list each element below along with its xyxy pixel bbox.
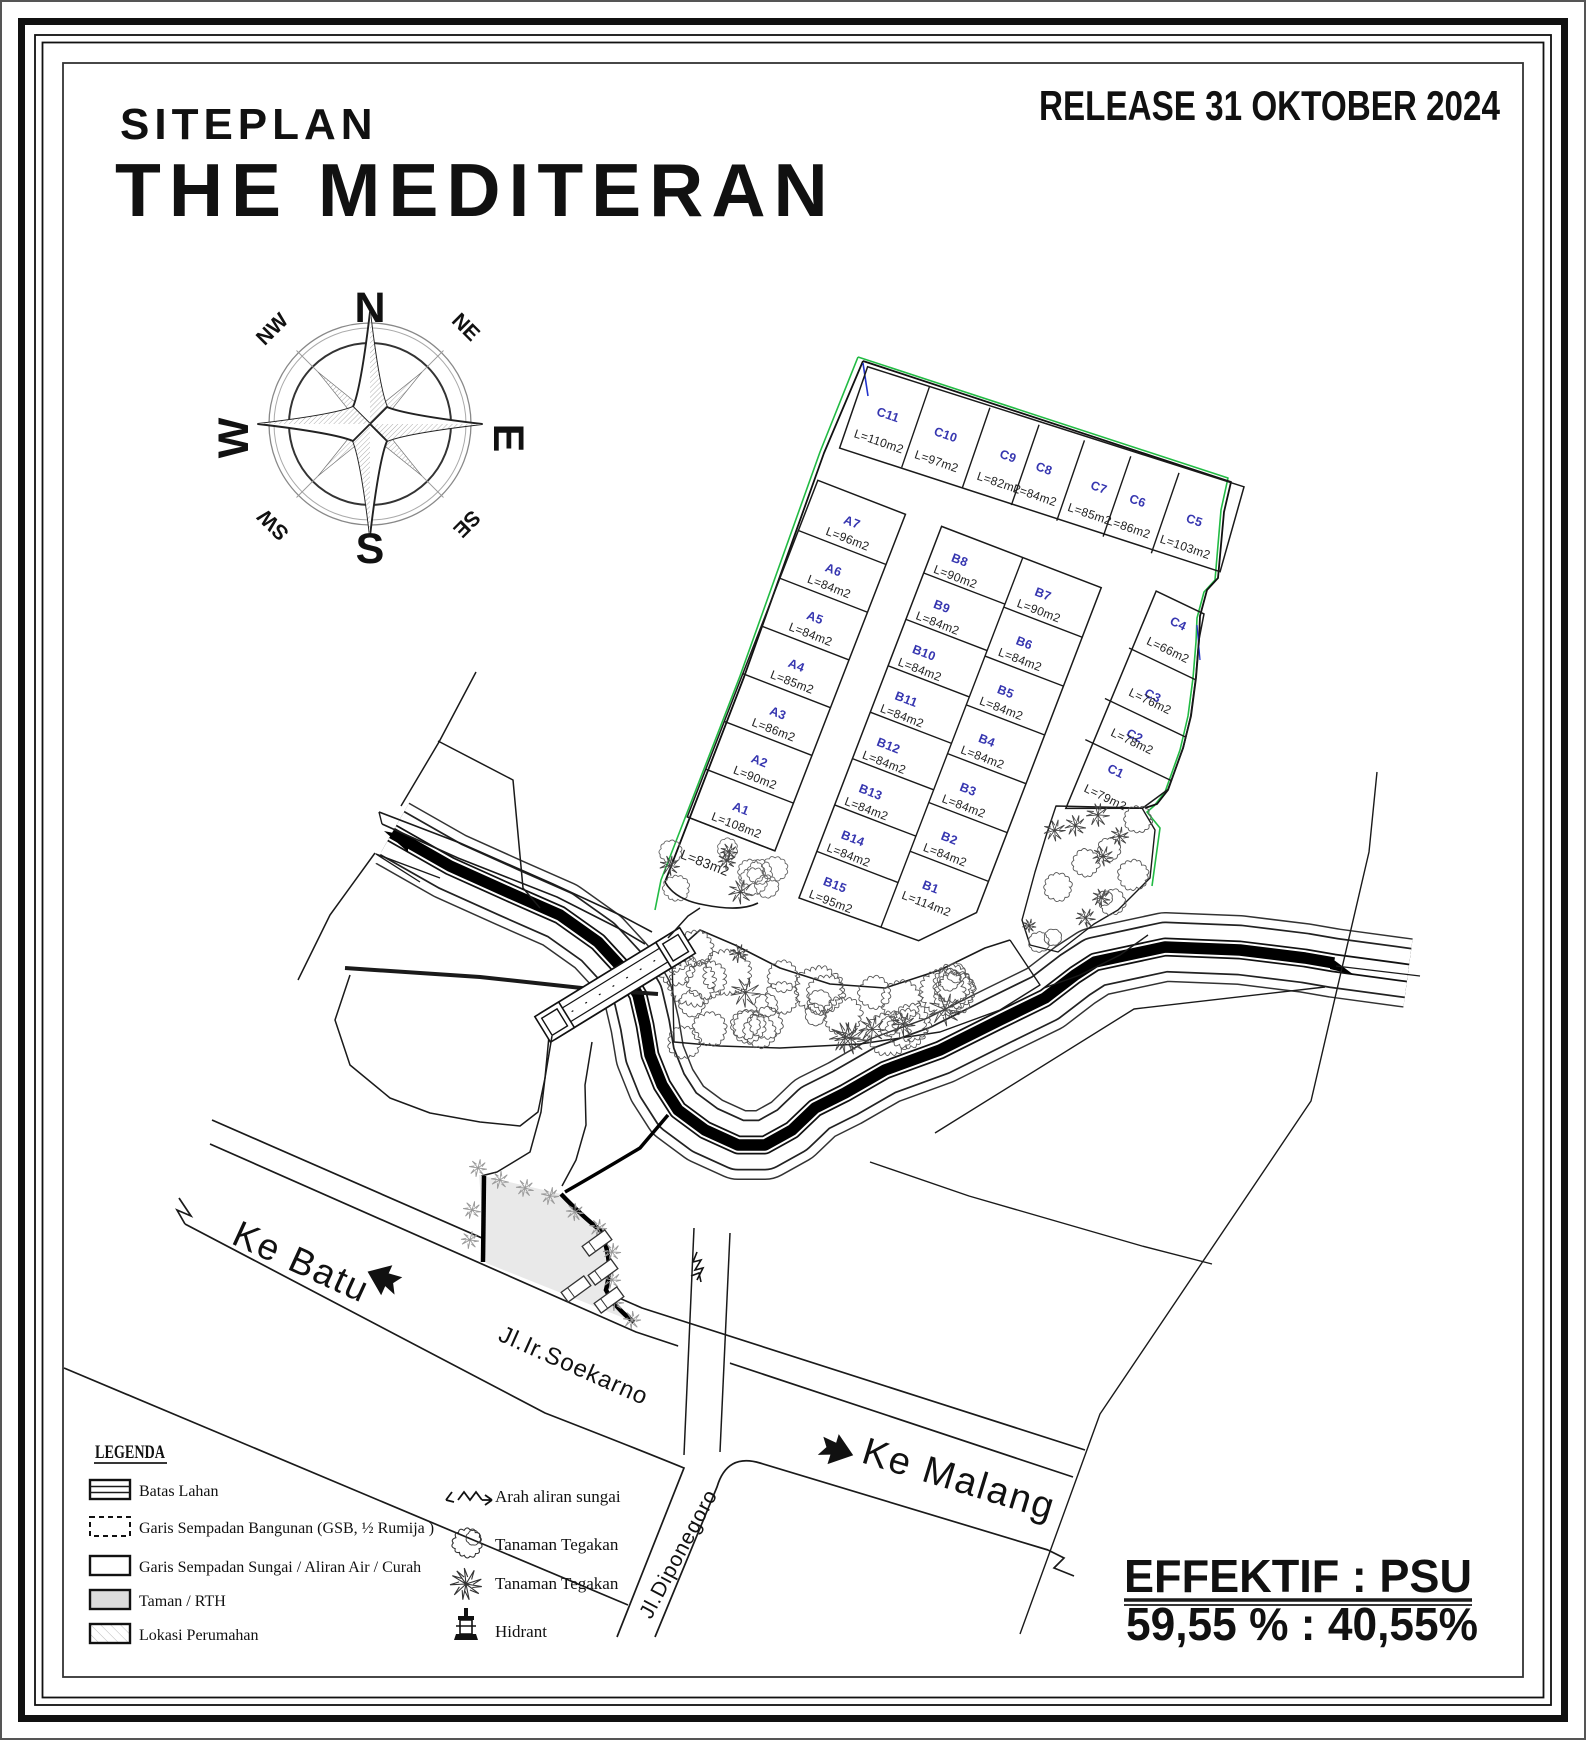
svg-text:LEGENDA: LEGENDA (95, 1442, 165, 1463)
svg-text:S: S (356, 525, 385, 573)
svg-text:W: W (210, 417, 258, 458)
svg-text:59,55 % : 40,55%: 59,55 % : 40,55% (1126, 1598, 1478, 1650)
svg-text:N: N (354, 284, 385, 332)
svg-text:THE MEDITERAN: THE MEDITERAN (115, 148, 836, 232)
svg-text:Tanaman Tegakan: Tanaman Tegakan (495, 1535, 619, 1554)
svg-text:Lokasi Perumahan: Lokasi Perumahan (139, 1627, 259, 1644)
svg-text:Tanaman Tegakan: Tanaman Tegakan (495, 1574, 619, 1593)
svg-text:Hidrant: Hidrant (495, 1622, 547, 1641)
svg-text:Batas Lahan: Batas Lahan (139, 1483, 219, 1500)
svg-text:Garis Sempadan Bangunan (GSB,: Garis Sempadan Bangunan (GSB, ½ Rumija ) (139, 1520, 434, 1537)
svg-text:Arah aliran sungai: Arah aliran sungai (495, 1487, 621, 1506)
svg-text:Garis Sempadan Sungai / Aliran: Garis Sempadan Sungai / Aliran Air / Cur… (139, 1559, 421, 1576)
svg-text:EFFEKTIF : PSU: EFFEKTIF : PSU (1124, 1550, 1472, 1602)
svg-text:RELEASE 31 OKTOBER 2024: RELEASE 31 OKTOBER 2024 (1039, 82, 1500, 129)
svg-text:Taman / RTH: Taman / RTH (139, 1593, 226, 1610)
svg-text:SITEPLAN: SITEPLAN (120, 100, 378, 149)
svg-text:E: E (484, 424, 532, 453)
